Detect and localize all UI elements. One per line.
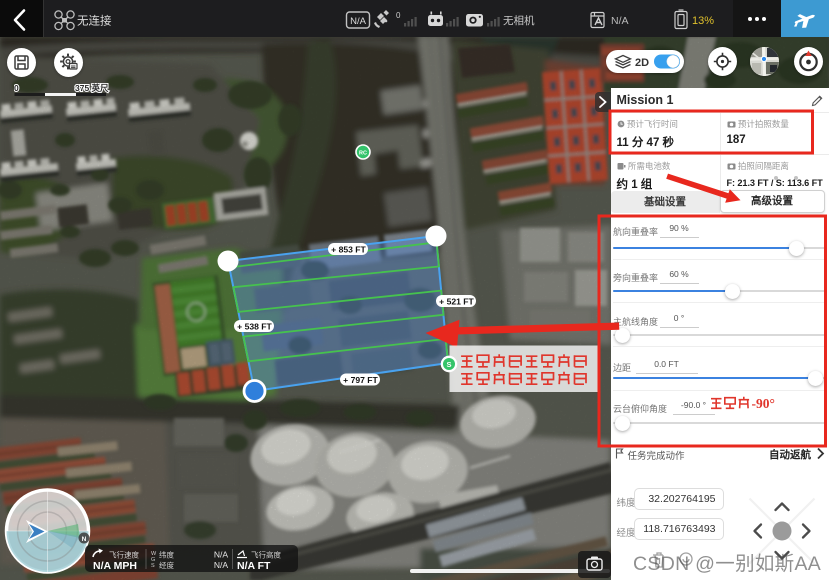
- svg-text:飞行速度: 飞行速度: [109, 549, 139, 559]
- svg-text:纬度: 纬度: [159, 549, 174, 559]
- svg-text:13%: 13%: [692, 15, 714, 27]
- svg-text:+ 853 FT: + 853 FT: [331, 245, 366, 255]
- svg-text:N/A: N/A: [214, 560, 229, 570]
- svg-text:375 英尺: 375 英尺: [75, 83, 109, 93]
- svg-text:+ 521 FT: + 521 FT: [439, 297, 474, 307]
- svg-text:0: 0: [396, 11, 401, 20]
- svg-text:0: 0: [14, 83, 19, 93]
- svg-text:无连接: 无连接: [77, 14, 112, 28]
- svg-text:S: S: [446, 360, 451, 369]
- svg-text:N/A: N/A: [214, 549, 229, 559]
- svg-text:N/A MPH: N/A MPH: [93, 560, 137, 572]
- svg-text:S: S: [151, 563, 155, 569]
- svg-text:N/A: N/A: [611, 15, 629, 27]
- svg-text:RC: RC: [359, 151, 367, 157]
- svg-text:+ 797 FT: + 797 FT: [343, 375, 378, 385]
- svg-text:2D: 2D: [635, 57, 649, 69]
- svg-text:N/A: N/A: [350, 16, 367, 27]
- svg-text:N: N: [82, 536, 87, 543]
- svg-text:经度: 经度: [159, 560, 174, 570]
- svg-text:无相机: 无相机: [503, 14, 535, 27]
- svg-text:飞行高度: 飞行高度: [251, 549, 281, 559]
- svg-text:+ 538 FT: + 538 FT: [237, 322, 272, 332]
- svg-text:N/A FT: N/A FT: [237, 560, 271, 572]
